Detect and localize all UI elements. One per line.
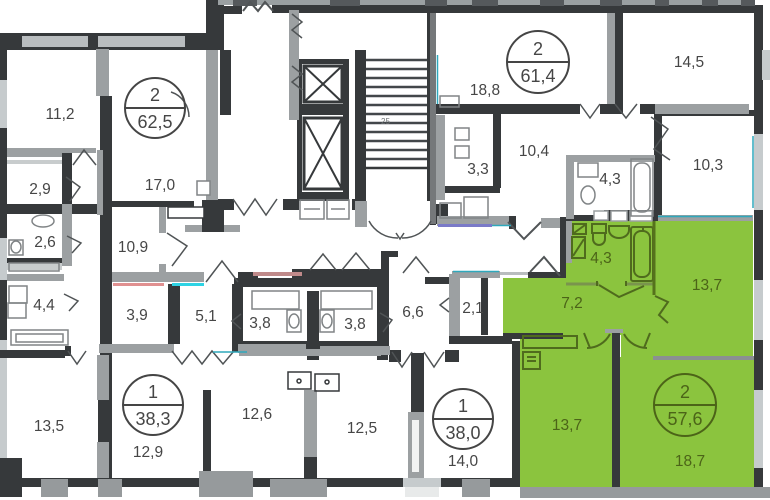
svg-text:14,5: 14,5 [674, 54, 704, 71]
svg-text:18,7: 18,7 [675, 453, 705, 470]
svg-text:57,6: 57,6 [667, 409, 702, 429]
svg-text:2,1: 2,1 [462, 300, 484, 317]
svg-text:3,8: 3,8 [344, 316, 366, 333]
svg-text:2: 2 [680, 382, 690, 402]
svg-text:1: 1 [148, 382, 158, 402]
svg-text:13,7: 13,7 [552, 417, 582, 434]
svg-text:6,6: 6,6 [402, 304, 424, 321]
svg-text:2: 2 [533, 39, 543, 59]
svg-text:17,0: 17,0 [145, 177, 176, 194]
svg-text:7,2: 7,2 [561, 295, 583, 312]
svg-text:62,5: 62,5 [137, 112, 172, 132]
svg-text:61,4: 61,4 [520, 66, 555, 86]
svg-text:1: 1 [458, 396, 468, 416]
svg-text:2,6: 2,6 [34, 234, 56, 251]
svg-text:3,9: 3,9 [126, 307, 148, 324]
svg-text:13,5: 13,5 [34, 418, 64, 435]
svg-text:5,1: 5,1 [195, 308, 217, 325]
svg-text:10,9: 10,9 [118, 239, 148, 256]
svg-text:12,6: 12,6 [242, 406, 272, 423]
svg-text:13,7: 13,7 [692, 277, 722, 294]
svg-text:12,5: 12,5 [347, 420, 377, 437]
svg-text:18,8: 18,8 [470, 82, 500, 99]
svg-text:4,3: 4,3 [599, 171, 621, 188]
svg-text:12,9: 12,9 [133, 444, 163, 461]
svg-text:38,3: 38,3 [135, 409, 170, 429]
svg-text:4,3: 4,3 [590, 250, 612, 267]
svg-text:14,0: 14,0 [448, 453, 479, 470]
svg-text:10,4: 10,4 [519, 143, 550, 160]
svg-text:3,8: 3,8 [249, 315, 271, 332]
svg-text:25: 25 [381, 117, 390, 126]
svg-text:4,4: 4,4 [33, 297, 55, 314]
svg-text:38,0: 38,0 [445, 423, 480, 443]
svg-text:11,2: 11,2 [45, 106, 74, 123]
svg-text:10,3: 10,3 [693, 157, 723, 174]
svg-text:2,9: 2,9 [29, 181, 51, 198]
svg-text:3,3: 3,3 [467, 161, 489, 178]
svg-text:2: 2 [150, 85, 160, 105]
